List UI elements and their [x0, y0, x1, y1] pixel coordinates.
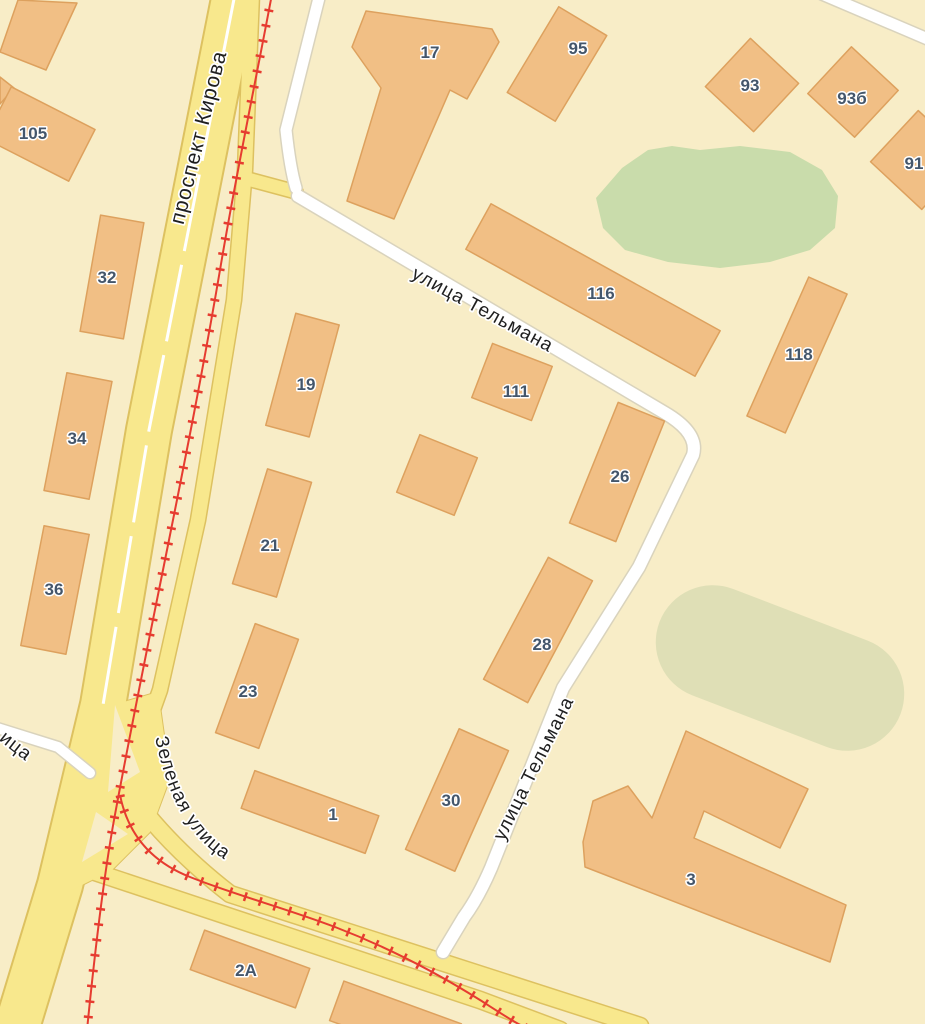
building-label-93b: 93б [837, 89, 866, 108]
building-label-21: 21 [261, 536, 280, 555]
building-label-1: 1 [328, 805, 337, 824]
building-label-118: 118 [785, 345, 812, 364]
building-label-34: 34 [68, 429, 87, 448]
building-label-2a: 2А [235, 961, 257, 980]
building-label-105: 105 [19, 124, 47, 143]
map-canvas[interactable]: проспект Кирова улица Тельмана улица Тел… [0, 0, 925, 1024]
building-label-28: 28 [533, 635, 552, 654]
building-label-95: 95 [569, 39, 588, 58]
building-label-23: 23 [239, 682, 258, 701]
building-label-17: 17 [421, 43, 440, 62]
building-label-19: 19 [297, 375, 316, 394]
building-label-36: 36 [45, 580, 64, 599]
building-label-3: 3 [686, 870, 695, 889]
building-label-116: 116 [587, 284, 614, 303]
building-label-91: 91 [905, 154, 924, 173]
park-area [596, 146, 838, 268]
building-label-111: 111 [503, 382, 530, 401]
building-label-93: 93 [741, 76, 760, 95]
building-label-30: 30 [442, 791, 461, 810]
building-label-26: 26 [611, 467, 630, 486]
building-label-32: 32 [98, 268, 117, 287]
